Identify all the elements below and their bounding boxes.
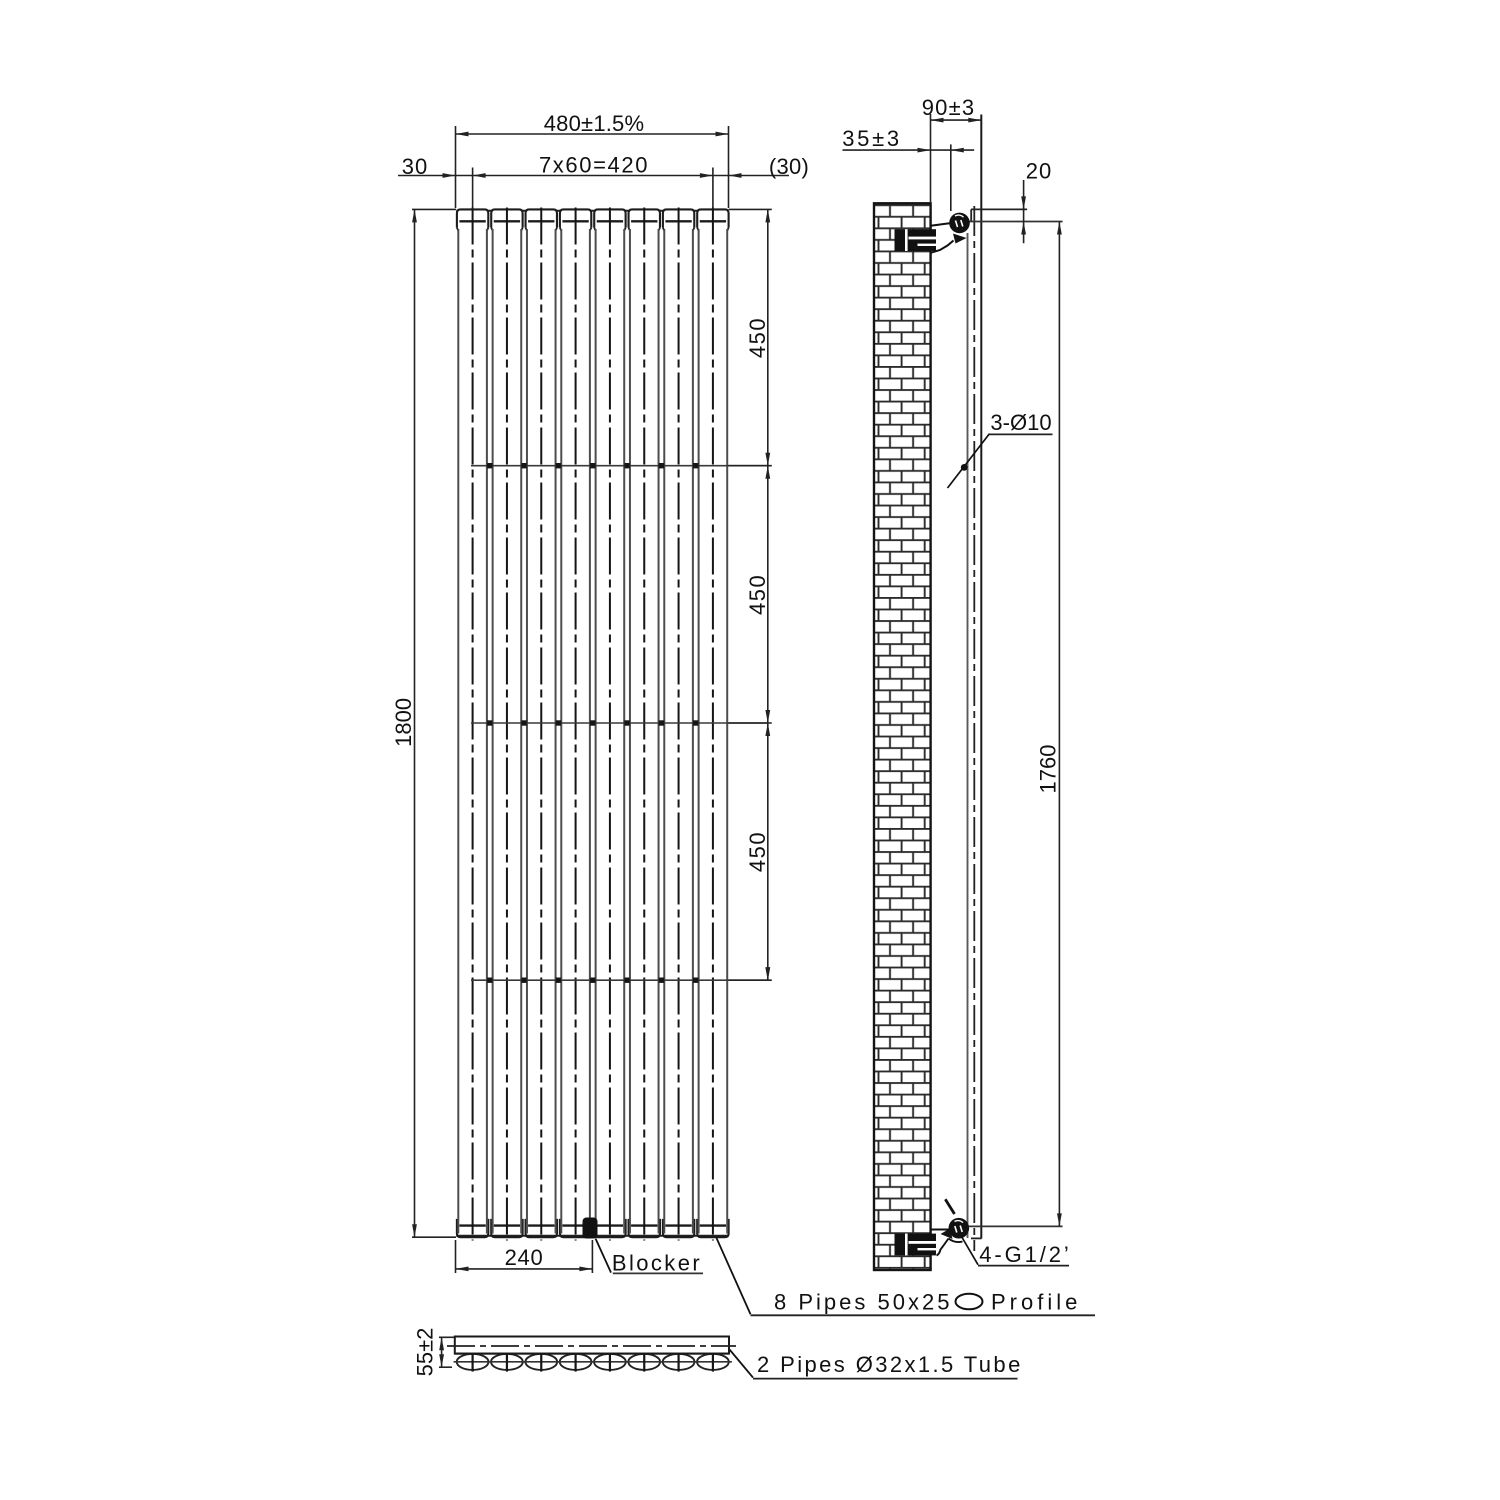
svg-text:20: 20 — [1026, 159, 1052, 184]
svg-text:480±1.5%: 480±1.5% — [544, 111, 645, 136]
svg-text:(30): (30) — [769, 154, 809, 179]
svg-text:240: 240 — [505, 1245, 544, 1270]
svg-text:55±2: 55±2 — [413, 1328, 438, 1377]
svg-text:30: 30 — [402, 154, 428, 179]
svg-text:450: 450 — [745, 317, 770, 358]
svg-text:2 Pipes Ø32x1.5 Tube: 2 Pipes Ø32x1.5 Tube — [757, 1352, 1023, 1377]
svg-text:450: 450 — [745, 831, 770, 872]
svg-text:3-Ø10: 3-Ø10 — [990, 410, 1051, 435]
svg-text:90±3: 90±3 — [922, 95, 976, 120]
svg-text:35±3: 35±3 — [842, 126, 902, 151]
svg-text:Blocker: Blocker — [612, 1251, 702, 1276]
svg-text:450: 450 — [745, 574, 770, 615]
svg-text:Profile: Profile — [991, 1290, 1081, 1315]
svg-text:4-G1/2’: 4-G1/2’ — [979, 1242, 1071, 1267]
svg-text:8 Pipes 50x25: 8 Pipes 50x25 — [774, 1290, 952, 1315]
svg-text:7x60=420: 7x60=420 — [539, 153, 649, 178]
svg-text:1800: 1800 — [391, 698, 416, 747]
svg-text:1760: 1760 — [1036, 745, 1061, 794]
